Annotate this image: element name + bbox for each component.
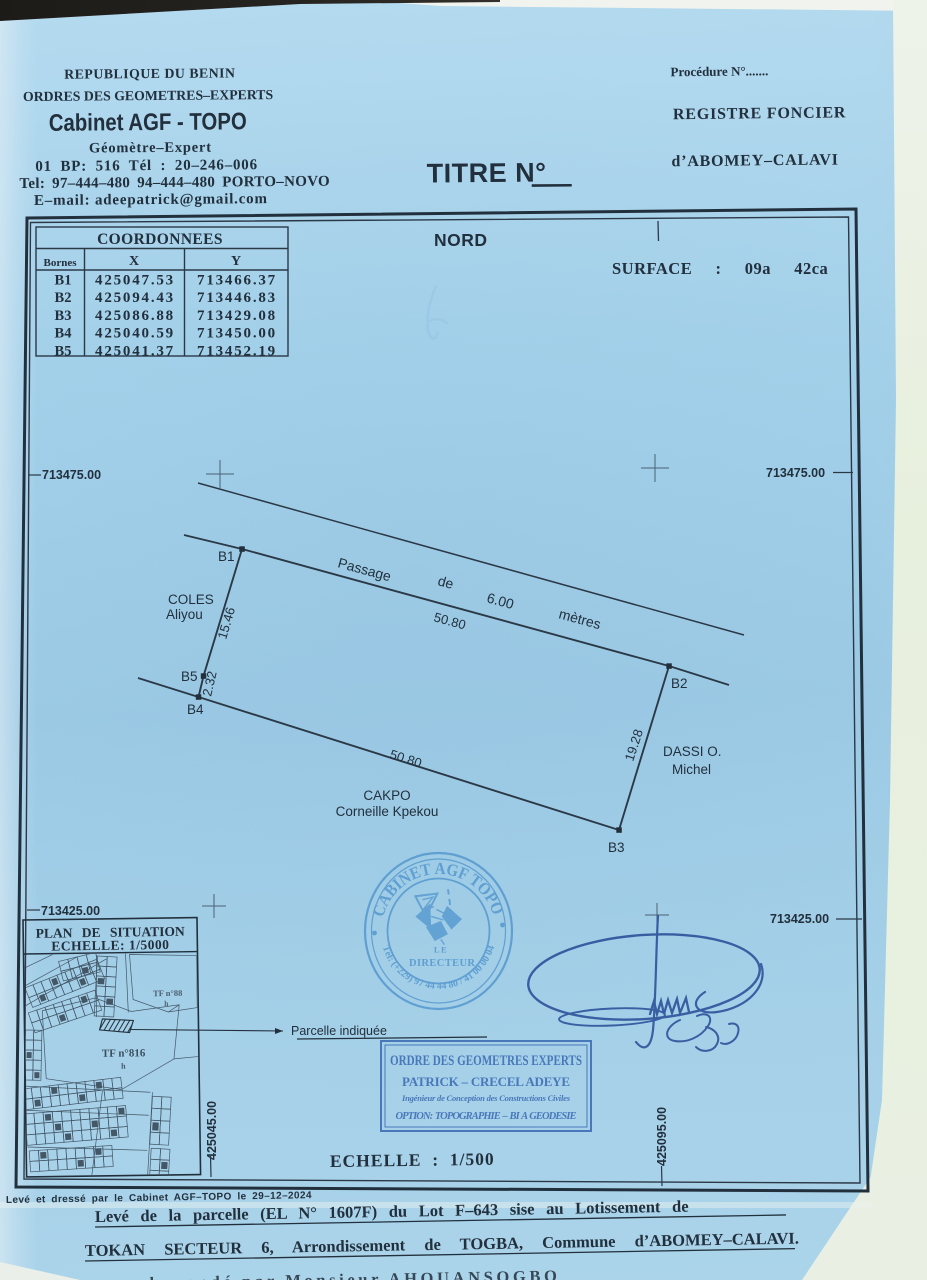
svg-text:713475.00: 713475.00: [766, 466, 825, 480]
svg-text:LE: LE: [434, 945, 448, 955]
svg-text:713452.19: 713452.19: [197, 343, 277, 359]
svg-text:DASSI O.: DASSI O.: [663, 744, 722, 759]
svg-text:Passage: Passage: [336, 554, 393, 584]
svg-text:de: de: [436, 572, 455, 592]
svg-text:713425.00: 713425.00: [770, 912, 829, 926]
svg-text:SURFACE : 09a 42ca: SURFACE : 09a 42ca: [612, 259, 828, 278]
svg-text:425095.00: 425095.00: [655, 1107, 669, 1166]
svg-text:B1: B1: [218, 549, 235, 564]
svg-text:REGISTRE FONCIER: REGISTRE FONCIER: [673, 104, 846, 123]
svg-text:425041.37: 425041.37: [95, 343, 175, 359]
svg-text:713425.00: 713425.00: [41, 904, 100, 918]
svg-text:B3: B3: [55, 308, 72, 324]
svg-text:ORDRES DES GEOMETRES–EXPERTS: ORDRES DES GEOMETRES–EXPERTS: [23, 87, 274, 104]
svg-text:PATRICK – CRECEL ADEYE: PATRICK – CRECEL ADEYE: [402, 1074, 570, 1089]
svg-text:Ingénieur de Conception des Co: Ingénieur de Conception des Construction…: [401, 1093, 571, 1103]
svg-text:demandé par Monsieur AHOUANSOG: demandé par Monsieur AHOUANSOGBO: [145, 1266, 557, 1280]
svg-text:B5: B5: [55, 343, 72, 359]
svg-text:h: h: [121, 1062, 126, 1071]
svg-text:B2: B2: [671, 676, 688, 691]
svg-text:Cabinet AGF - TOPO: Cabinet AGF - TOPO: [49, 108, 247, 137]
svg-text:713446.83: 713446.83: [197, 290, 277, 306]
svg-text:Parcelle indiquée: Parcelle indiquée: [291, 1024, 387, 1038]
svg-text:Bornes: Bornes: [44, 257, 78, 269]
svg-text:TITRE N°: TITRE N°: [426, 157, 546, 188]
svg-text:X: X: [129, 254, 139, 269]
svg-text:NORD: NORD: [434, 230, 488, 250]
svg-text:mètres: mètres: [557, 605, 603, 632]
svg-text:COORDONNEES: COORDONNEES: [97, 231, 223, 248]
svg-text:B4: B4: [55, 326, 72, 342]
svg-text:19.28: 19.28: [622, 727, 646, 763]
svg-text:425040.59: 425040.59: [95, 326, 175, 342]
svg-text:B3: B3: [608, 840, 625, 855]
svg-text:Tel: 97–444–480 94–444–480: Tel: 97–444–480 94–444–480 PORTO–NOVO: [19, 174, 330, 192]
svg-text:6.00: 6.00: [485, 589, 516, 612]
svg-text:50.80: 50.80: [432, 609, 467, 632]
svg-text:h: h: [164, 999, 169, 1008]
svg-text:Procédure N°.......: Procédure N°.......: [670, 63, 768, 79]
svg-text:Corneille Kpekou: Corneille Kpekou: [336, 804, 439, 819]
svg-text:TF n°88: TF n°88: [153, 988, 182, 998]
svg-text:E–mail: adeepatrick@gmail.com: E–mail: adeepatrick@gmail.com: [34, 191, 268, 209]
svg-text:DIRECTEUR: DIRECTEUR: [409, 958, 475, 969]
svg-text:425047.53: 425047.53: [95, 273, 175, 289]
svg-text:B4: B4: [187, 702, 204, 717]
svg-text:ECHELLE : 1/500: ECHELLE : 1/500: [330, 1149, 495, 1171]
svg-text:425086.88: 425086.88: [95, 308, 175, 324]
svg-text:Géomètre–Expert: Géomètre–Expert: [89, 140, 212, 157]
svg-text:REPUBLIQUE DU BENIN: REPUBLIQUE DU BENIN: [64, 65, 235, 81]
svg-text:Michel: Michel: [672, 762, 711, 777]
svg-text:Aliyou: Aliyou: [166, 607, 203, 622]
svg-text:01 BP: 516 Tél : 20–246–0: 01 BP: 516 Tél : 20–246–006: [35, 157, 258, 175]
svg-text:ORDRE DES GEOMETRES EXPERTS: ORDRE DES GEOMETRES EXPERTS: [390, 1053, 582, 1069]
svg-text:Y: Y: [231, 254, 241, 269]
svg-text:425094.43: 425094.43: [95, 290, 175, 306]
svg-text:B5: B5: [181, 669, 198, 684]
svg-text:425045.00: 425045.00: [205, 1101, 219, 1160]
svg-text:COLES: COLES: [168, 592, 214, 607]
svg-text:TF n°816: TF n°816: [102, 1047, 146, 1060]
svg-text:OPTION: TOPOGRAPHIE – BI A GEO: OPTION: TOPOGRAPHIE – BI A GEODESIE: [396, 1111, 577, 1122]
svg-text:50.80: 50.80: [388, 747, 424, 771]
svg-text:713475.00: 713475.00: [42, 468, 101, 482]
svg-text:B2: B2: [55, 290, 72, 306]
svg-text:ECHELLE: 1/5000: ECHELLE: 1/5000: [51, 937, 169, 954]
svg-text:15.46: 15.46: [214, 605, 238, 640]
svg-text:B1: B1: [55, 273, 72, 289]
svg-text:713466.37: 713466.37: [197, 273, 277, 289]
svg-text:713429.08: 713429.08: [197, 308, 277, 324]
svg-text:d’ABOMEY–CALAVI: d’ABOMEY–CALAVI: [671, 151, 838, 170]
svg-text:CAKPO: CAKPO: [363, 788, 410, 803]
svg-text:713450.00: 713450.00: [197, 326, 277, 342]
